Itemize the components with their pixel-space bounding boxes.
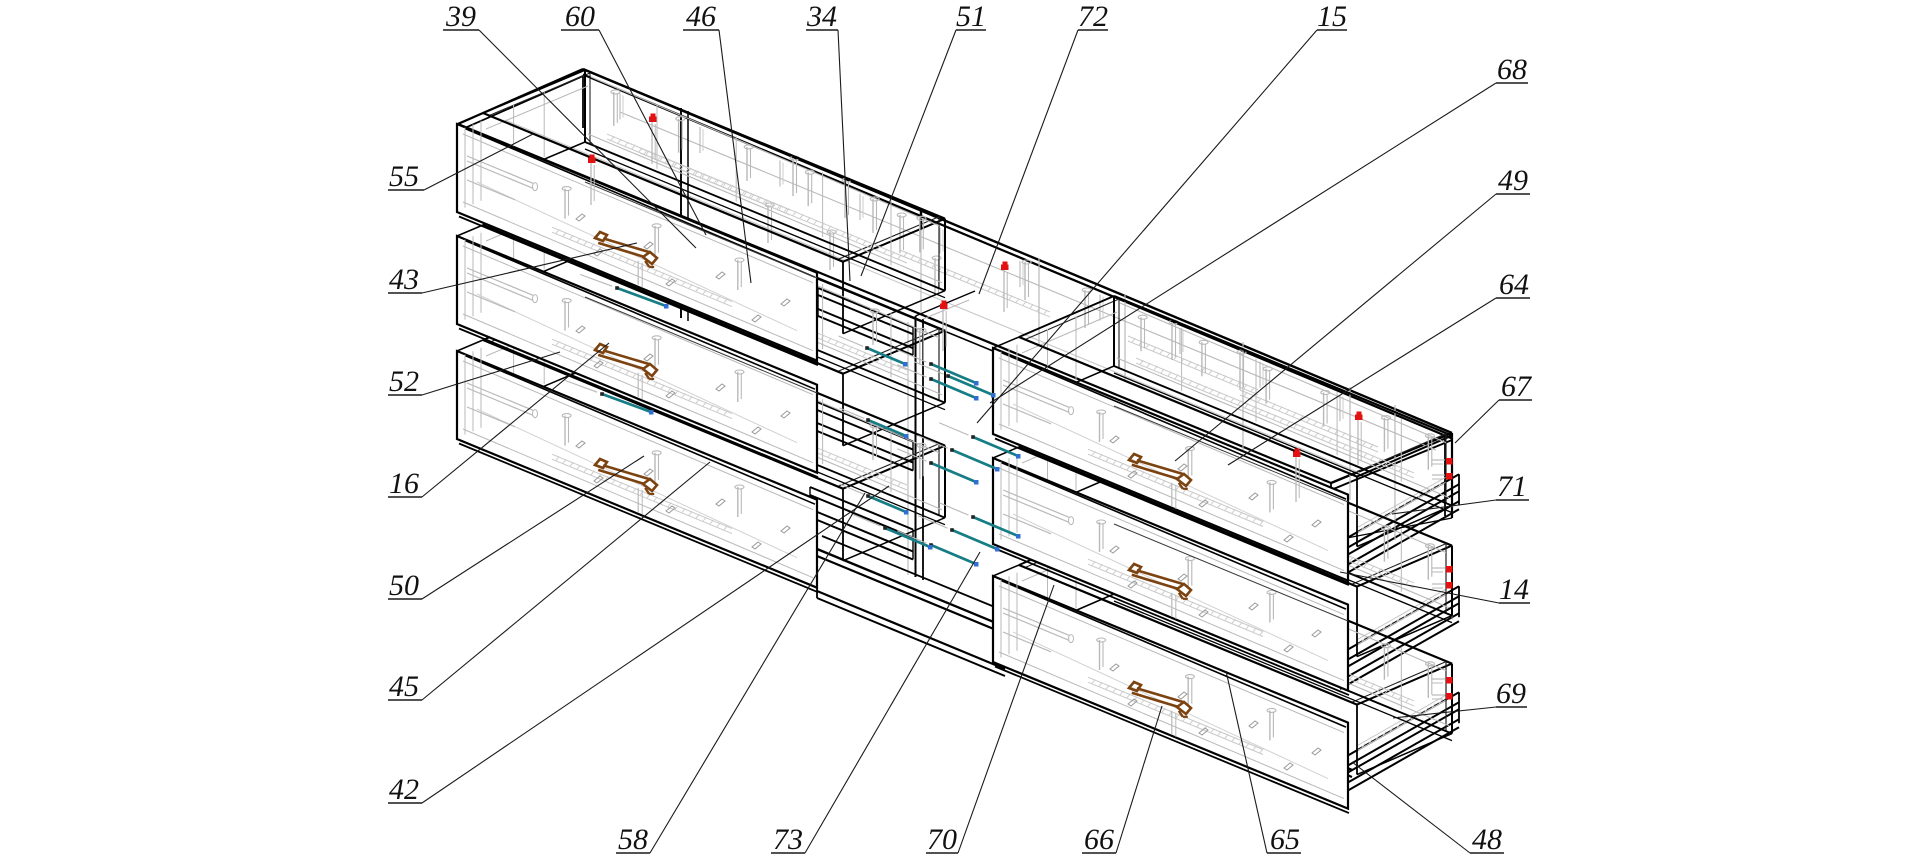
svg-text:58: 58 [618,823,648,856]
svg-text:16: 16 [389,467,419,500]
svg-text:65: 65 [1270,823,1300,856]
svg-text:69: 69 [1496,677,1526,710]
svg-text:39: 39 [445,0,476,33]
svg-text:52: 52 [389,365,419,398]
svg-text:15: 15 [1317,0,1347,33]
svg-text:67: 67 [1501,370,1533,403]
svg-text:71: 71 [1497,470,1527,503]
svg-text:60: 60 [565,0,595,33]
svg-text:55: 55 [389,160,419,193]
svg-text:50: 50 [389,569,419,602]
svg-text:46: 46 [686,0,716,33]
svg-text:43: 43 [389,263,419,296]
svg-text:34: 34 [806,0,837,33]
svg-text:68: 68 [1497,53,1527,86]
svg-text:45: 45 [389,670,419,703]
svg-text:73: 73 [773,823,803,856]
svg-text:49: 49 [1498,164,1528,197]
svg-text:72: 72 [1078,0,1108,33]
svg-text:51: 51 [956,0,986,33]
svg-text:42: 42 [389,773,419,806]
svg-text:64: 64 [1499,268,1529,301]
svg-text:48: 48 [1472,823,1502,856]
svg-text:66: 66 [1084,823,1114,856]
svg-text:70: 70 [927,823,957,856]
svg-text:14: 14 [1499,573,1529,606]
